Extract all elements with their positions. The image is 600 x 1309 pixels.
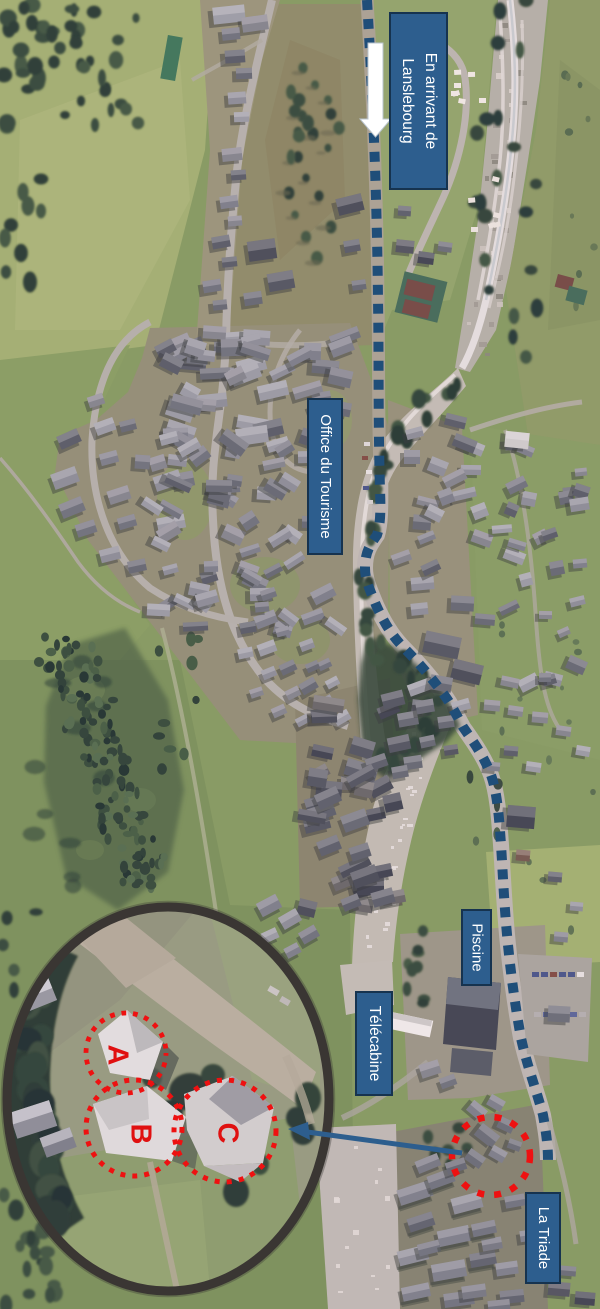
svg-text:C: C (211, 1123, 243, 1144)
svg-text:Télécabine: Télécabine (366, 1006, 383, 1082)
svg-text:La Triade: La Triade (535, 1207, 552, 1270)
svg-text:Office du Tourisme: Office du Tourisme (317, 414, 334, 539)
svg-text:Lanslebourg: Lanslebourg (399, 58, 416, 143)
svg-text:Piscine: Piscine (469, 923, 486, 971)
svg-text:A: A (101, 1045, 133, 1066)
svg-text:B: B (124, 1124, 156, 1145)
svg-text:En arrivant de: En arrivant de (422, 53, 439, 150)
